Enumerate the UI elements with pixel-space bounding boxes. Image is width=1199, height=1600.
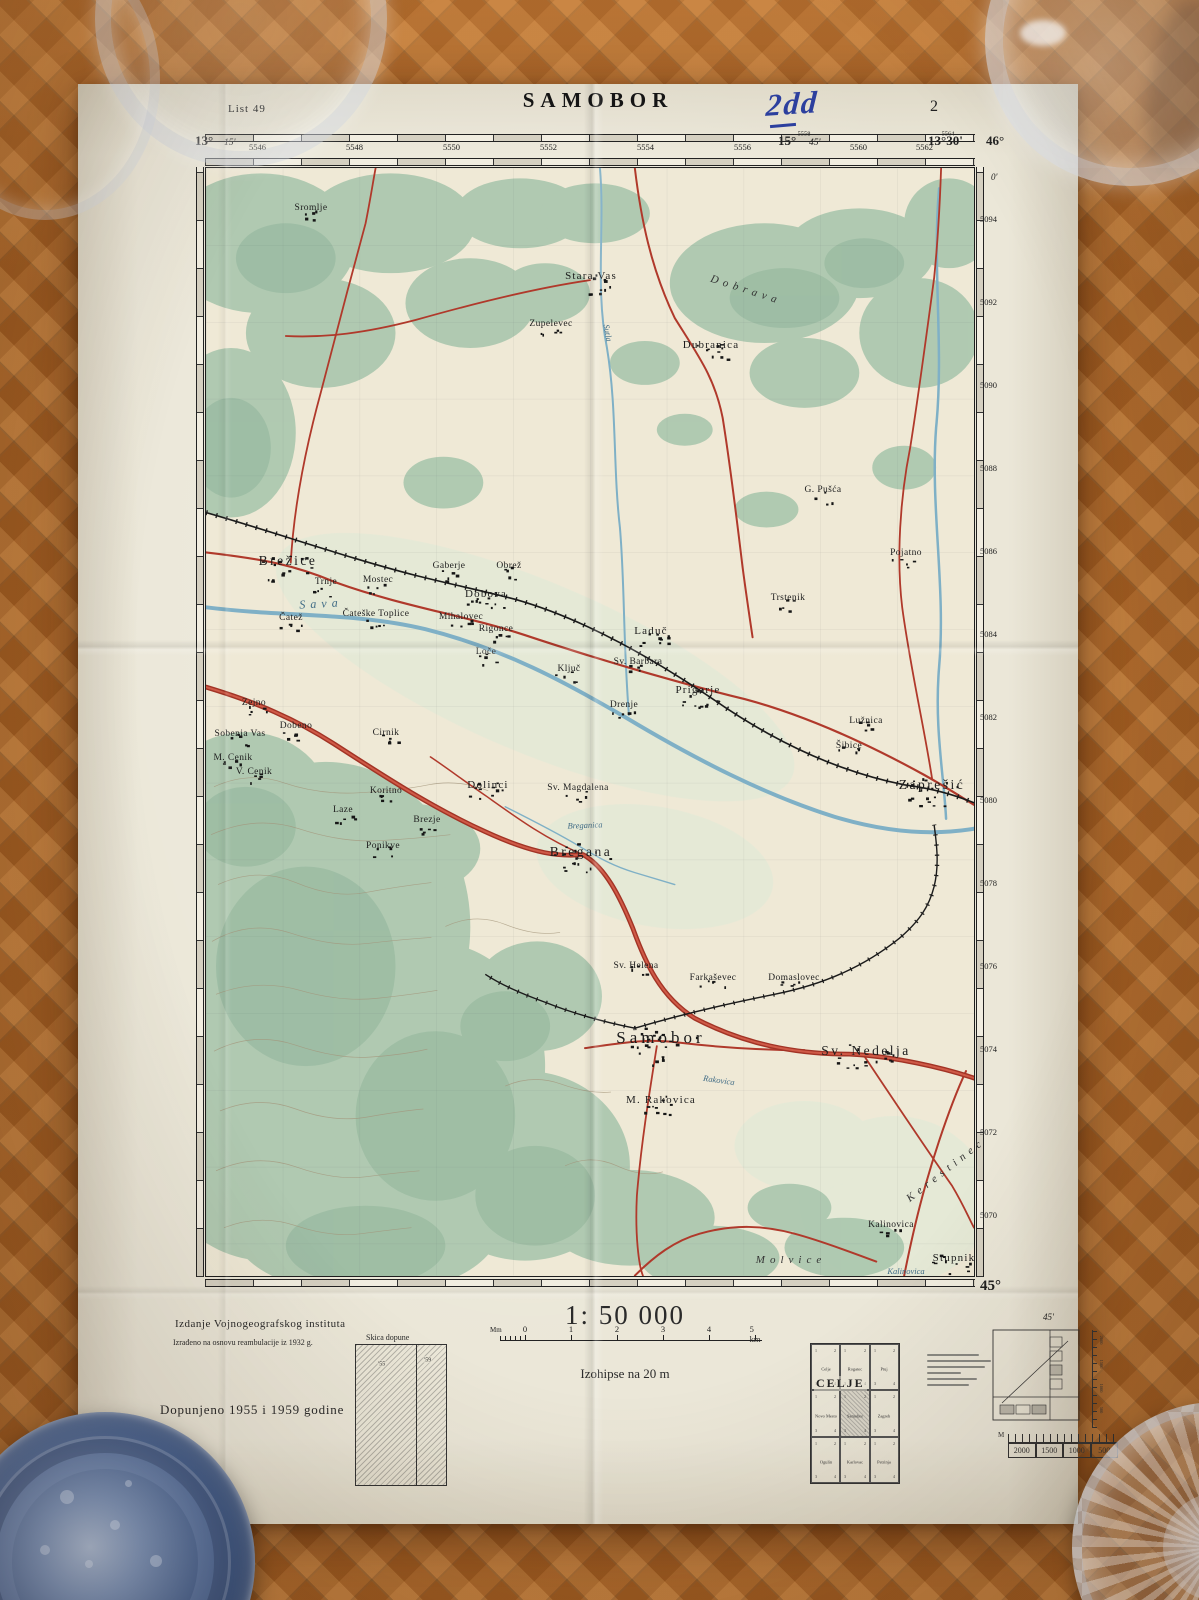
graticule-label: 5554 bbox=[637, 142, 654, 152]
grid-number: 5088 bbox=[980, 463, 997, 473]
scale-tick bbox=[617, 1335, 618, 1341]
place-label: Kalinovica bbox=[868, 1220, 914, 1230]
place-label: Kalinovica bbox=[887, 1266, 924, 1276]
place-label: Gaberje bbox=[433, 561, 466, 571]
place-label: Trnje bbox=[315, 577, 337, 587]
place-label: Cirnik bbox=[373, 728, 400, 738]
scale-bar-prefix: Mm bbox=[490, 1326, 502, 1334]
map-sheet: List 49 SAMOBOR 2 2dd 13°15'554655485550… bbox=[78, 84, 1078, 1524]
place-label: Molvice bbox=[756, 1254, 826, 1266]
grid-number: 5094 bbox=[980, 214, 997, 224]
grid-number: 5076 bbox=[980, 961, 997, 971]
scale-tick-label: 5 km bbox=[750, 1324, 761, 1344]
glass-bubble bbox=[150, 1555, 162, 1567]
glass-shadow-top-right bbox=[1136, 0, 1199, 175]
place-label: Lužnica bbox=[849, 716, 882, 726]
index-sheet-cell: Ogulin1234 bbox=[811, 1437, 840, 1483]
place-label: Mostec bbox=[363, 575, 393, 585]
grid-number: 5074 bbox=[980, 1044, 997, 1054]
scale-title: 1: 50 000 bbox=[525, 1300, 725, 1331]
place-label: Dolinci bbox=[467, 779, 508, 791]
graticule-label: 46° bbox=[986, 133, 1004, 149]
graticule-label: 5556 bbox=[734, 142, 751, 152]
grid-convergence-diagram bbox=[990, 1327, 1082, 1425]
fold-crease-horizontal-2 bbox=[78, 1286, 1078, 1300]
grid-number: 5090 bbox=[980, 380, 997, 390]
glass-highlight-top-right bbox=[1020, 20, 1066, 46]
scale-bar-line bbox=[500, 1340, 762, 1341]
graticule-label: 15° bbox=[778, 133, 796, 149]
vertical-ruler-value: 1500 bbox=[1099, 1360, 1104, 1369]
grid-number: 5080 bbox=[980, 795, 997, 805]
place-label: Brežice bbox=[259, 553, 318, 569]
ruler-cells: 200015001000500 bbox=[1008, 1443, 1118, 1458]
place-label: Sv. Helena bbox=[613, 961, 658, 971]
place-label: Sv. Magdalena bbox=[547, 783, 609, 793]
place-label: Rakovica bbox=[703, 1073, 736, 1087]
place-label: Stara Vas bbox=[565, 270, 617, 282]
sheet-number: 2 bbox=[930, 98, 938, 116]
corner-minute-label: 45' bbox=[1043, 1312, 1054, 1322]
place-label: Brezje bbox=[413, 815, 440, 825]
scale-tick bbox=[709, 1335, 710, 1341]
handwritten-underline bbox=[770, 123, 796, 128]
graticule-label: 5550 bbox=[443, 142, 460, 152]
grid-number: 5078 bbox=[980, 878, 997, 888]
place-label: Sutla bbox=[602, 324, 615, 343]
place-labels: SromljeStara VasZupelevecDubranicaDobrav… bbox=[206, 168, 974, 1276]
place-label: Samobor bbox=[616, 1028, 705, 1048]
glass-bubble bbox=[40, 1545, 50, 1555]
place-label: Sava bbox=[299, 595, 343, 612]
place-label: Ključ bbox=[557, 664, 580, 674]
place-label: Zejno bbox=[242, 698, 266, 708]
publisher-line-2: Izrađeno na osnovu reambulacije iz 1932 … bbox=[173, 1338, 313, 1347]
place-label: Farkaševec bbox=[690, 973, 737, 983]
place-label: Stupnik bbox=[933, 1252, 976, 1264]
sheet-list-number: List 49 bbox=[228, 103, 266, 115]
glass-bowl-bottom-right bbox=[1072, 1402, 1199, 1600]
grid-number: 5070 bbox=[980, 1210, 997, 1220]
graticule-label: 5558 bbox=[798, 130, 811, 137]
place-label: M. Rakovica bbox=[626, 1094, 696, 1106]
grid-number: 5086 bbox=[980, 546, 997, 556]
grid-number: 5072 bbox=[980, 1127, 997, 1137]
index-map-title: CELJE bbox=[814, 1376, 867, 1391]
place-label: Sromlje bbox=[295, 203, 328, 213]
map-body: SromljeStara VasZupelevecDubranicaDobrav… bbox=[205, 167, 975, 1277]
contour-interval-note: Izohipse na 20 m bbox=[525, 1366, 725, 1382]
vertical-slope-ruler: 200015001000500 bbox=[1092, 1330, 1106, 1428]
ruler-value-cell: 1500 bbox=[1036, 1443, 1064, 1458]
graticule-label: 13° bbox=[195, 133, 213, 149]
vertical-ruler-value: 500 bbox=[1099, 1407, 1104, 1414]
place-label: M. Cenik bbox=[213, 753, 252, 763]
left-border-ruler bbox=[196, 167, 204, 1277]
place-label: Rigonce bbox=[479, 624, 513, 634]
scale-tick-label: 0 bbox=[523, 1324, 527, 1334]
adjoining-sheets-index: Celje1234Rogatec1234Ptuj1234Novo Mesto12… bbox=[810, 1343, 900, 1484]
fine-print-lines bbox=[927, 1354, 997, 1390]
place-label: Zaprešić bbox=[899, 777, 965, 793]
place-label: Koritno bbox=[370, 786, 402, 796]
index-sheet-cell: Zagreb1234 bbox=[870, 1390, 899, 1436]
place-label: Obrež bbox=[496, 561, 521, 571]
place-label: Dobeno bbox=[280, 721, 312, 731]
index-sheet-cell: Novo Mesto1234 bbox=[811, 1390, 840, 1436]
place-label: Sobenja Vas bbox=[215, 729, 266, 739]
graticule-label: 13°30' bbox=[928, 133, 963, 149]
graticule-label: 5552 bbox=[540, 142, 557, 152]
sketch-divider bbox=[416, 1345, 417, 1485]
top-border-ruler-outer bbox=[205, 134, 975, 142]
top-border-ruler-inner bbox=[205, 158, 975, 166]
scale-tick-label: 1 bbox=[569, 1324, 573, 1334]
graticule-label: 5548 bbox=[346, 142, 363, 152]
ruler-value-cell: 2000 bbox=[1008, 1443, 1036, 1458]
place-label: Ponikve bbox=[366, 841, 400, 851]
place-label: Laduč bbox=[634, 625, 667, 637]
place-label: Loče bbox=[476, 647, 497, 657]
place-label: Drenje bbox=[610, 700, 638, 710]
place-label: Breganica bbox=[567, 819, 602, 830]
revision-sketch-box: '55 '59 bbox=[355, 1344, 447, 1486]
place-label: Laze bbox=[333, 805, 353, 815]
vertical-ruler-value: 1000 bbox=[1099, 1384, 1104, 1393]
scale-tick bbox=[571, 1335, 572, 1341]
place-label: V. Cenik bbox=[236, 767, 272, 777]
place-label: Šibice bbox=[836, 741, 862, 751]
place-label: Bregana bbox=[550, 844, 612, 860]
right-border-ruler bbox=[976, 167, 984, 1277]
map-title: SAMOBOR bbox=[498, 88, 698, 113]
glass-bubble bbox=[85, 1560, 93, 1568]
glass-bubble bbox=[110, 1520, 120, 1530]
sketch-year-left: '55 bbox=[377, 1360, 386, 1367]
ruler-value-cell: 500 bbox=[1091, 1443, 1119, 1458]
place-label: Čatež bbox=[279, 613, 303, 623]
place-label: Čateške Toplice bbox=[343, 609, 410, 619]
place-label: Trstenik bbox=[771, 593, 806, 603]
sketch-year-right: '59 bbox=[423, 1356, 432, 1363]
grid-number: 5092 bbox=[980, 297, 997, 307]
scale-tick bbox=[525, 1335, 526, 1341]
place-label: Sv. Barbara bbox=[614, 657, 663, 667]
place-label: Dobova bbox=[465, 588, 507, 600]
place-label: Dobrava bbox=[709, 273, 783, 307]
place-label: Pojatno bbox=[890, 548, 922, 558]
bottom-border-ruler bbox=[205, 1279, 975, 1287]
corner-latitude-label: 45° bbox=[980, 1278, 1001, 1295]
scale-bar: Mm 012345 km bbox=[500, 1328, 762, 1346]
scale-tick bbox=[663, 1335, 664, 1341]
scale-tick-label: 3 bbox=[661, 1324, 665, 1334]
index-sheet-cell: Samobor1234 bbox=[840, 1390, 869, 1436]
place-label: Prigorje bbox=[675, 684, 720, 696]
index-sheet-cell: Petrinja1234 bbox=[870, 1437, 899, 1483]
publisher-line-1: Izdanje Vojnogeografskog instituta bbox=[175, 1318, 346, 1330]
ruler-value-cell: 1000 bbox=[1063, 1443, 1091, 1458]
right-top-minute-label: 0' bbox=[991, 172, 997, 182]
ruler-unit-label: M bbox=[998, 1431, 1004, 1439]
graticule-label: 15' bbox=[224, 138, 236, 148]
index-sheet-cell: Karlovac1234 bbox=[840, 1437, 869, 1483]
graticule-label: 5560 bbox=[850, 142, 867, 152]
ruler-ticks bbox=[1008, 1434, 1118, 1443]
place-label: Zupelevec bbox=[529, 319, 572, 329]
place-label: Mihalovec bbox=[439, 612, 483, 622]
vertical-ruler-value: 2000 bbox=[1099, 1336, 1104, 1345]
place-label: Dubranica bbox=[683, 339, 740, 351]
horizontal-distance-ruler: M 200015001000500 bbox=[1008, 1434, 1118, 1460]
graticule-label: 45' bbox=[809, 138, 821, 148]
place-label: Domaslovec bbox=[768, 973, 820, 983]
scale-tick-label: 2 bbox=[615, 1324, 619, 1334]
grid-number: 5082 bbox=[980, 712, 997, 722]
grid-number: 5084 bbox=[980, 629, 997, 639]
photo-scene: List 49 SAMOBOR 2 2dd 13°15'554655485550… bbox=[0, 0, 1199, 1600]
revision-sketch-label: Skica dopune bbox=[366, 1333, 409, 1342]
glass-bubble bbox=[60, 1490, 74, 1504]
scale-tick-label: 4 bbox=[707, 1324, 711, 1334]
index-sheet-cell: Ptuj1234 bbox=[870, 1344, 899, 1390]
scale-bar-fine-ticks bbox=[500, 1336, 525, 1341]
place-label: Sv. Nedelja bbox=[821, 1043, 911, 1059]
place-label: G. Pušća bbox=[805, 485, 842, 495]
updated-note: Dopunjeno 1955 i 1959 godine bbox=[160, 1402, 344, 1418]
glass-bubble bbox=[125, 1480, 132, 1487]
graticule-label: 5546 bbox=[249, 142, 266, 152]
handwritten-note: 2dd bbox=[765, 84, 820, 124]
